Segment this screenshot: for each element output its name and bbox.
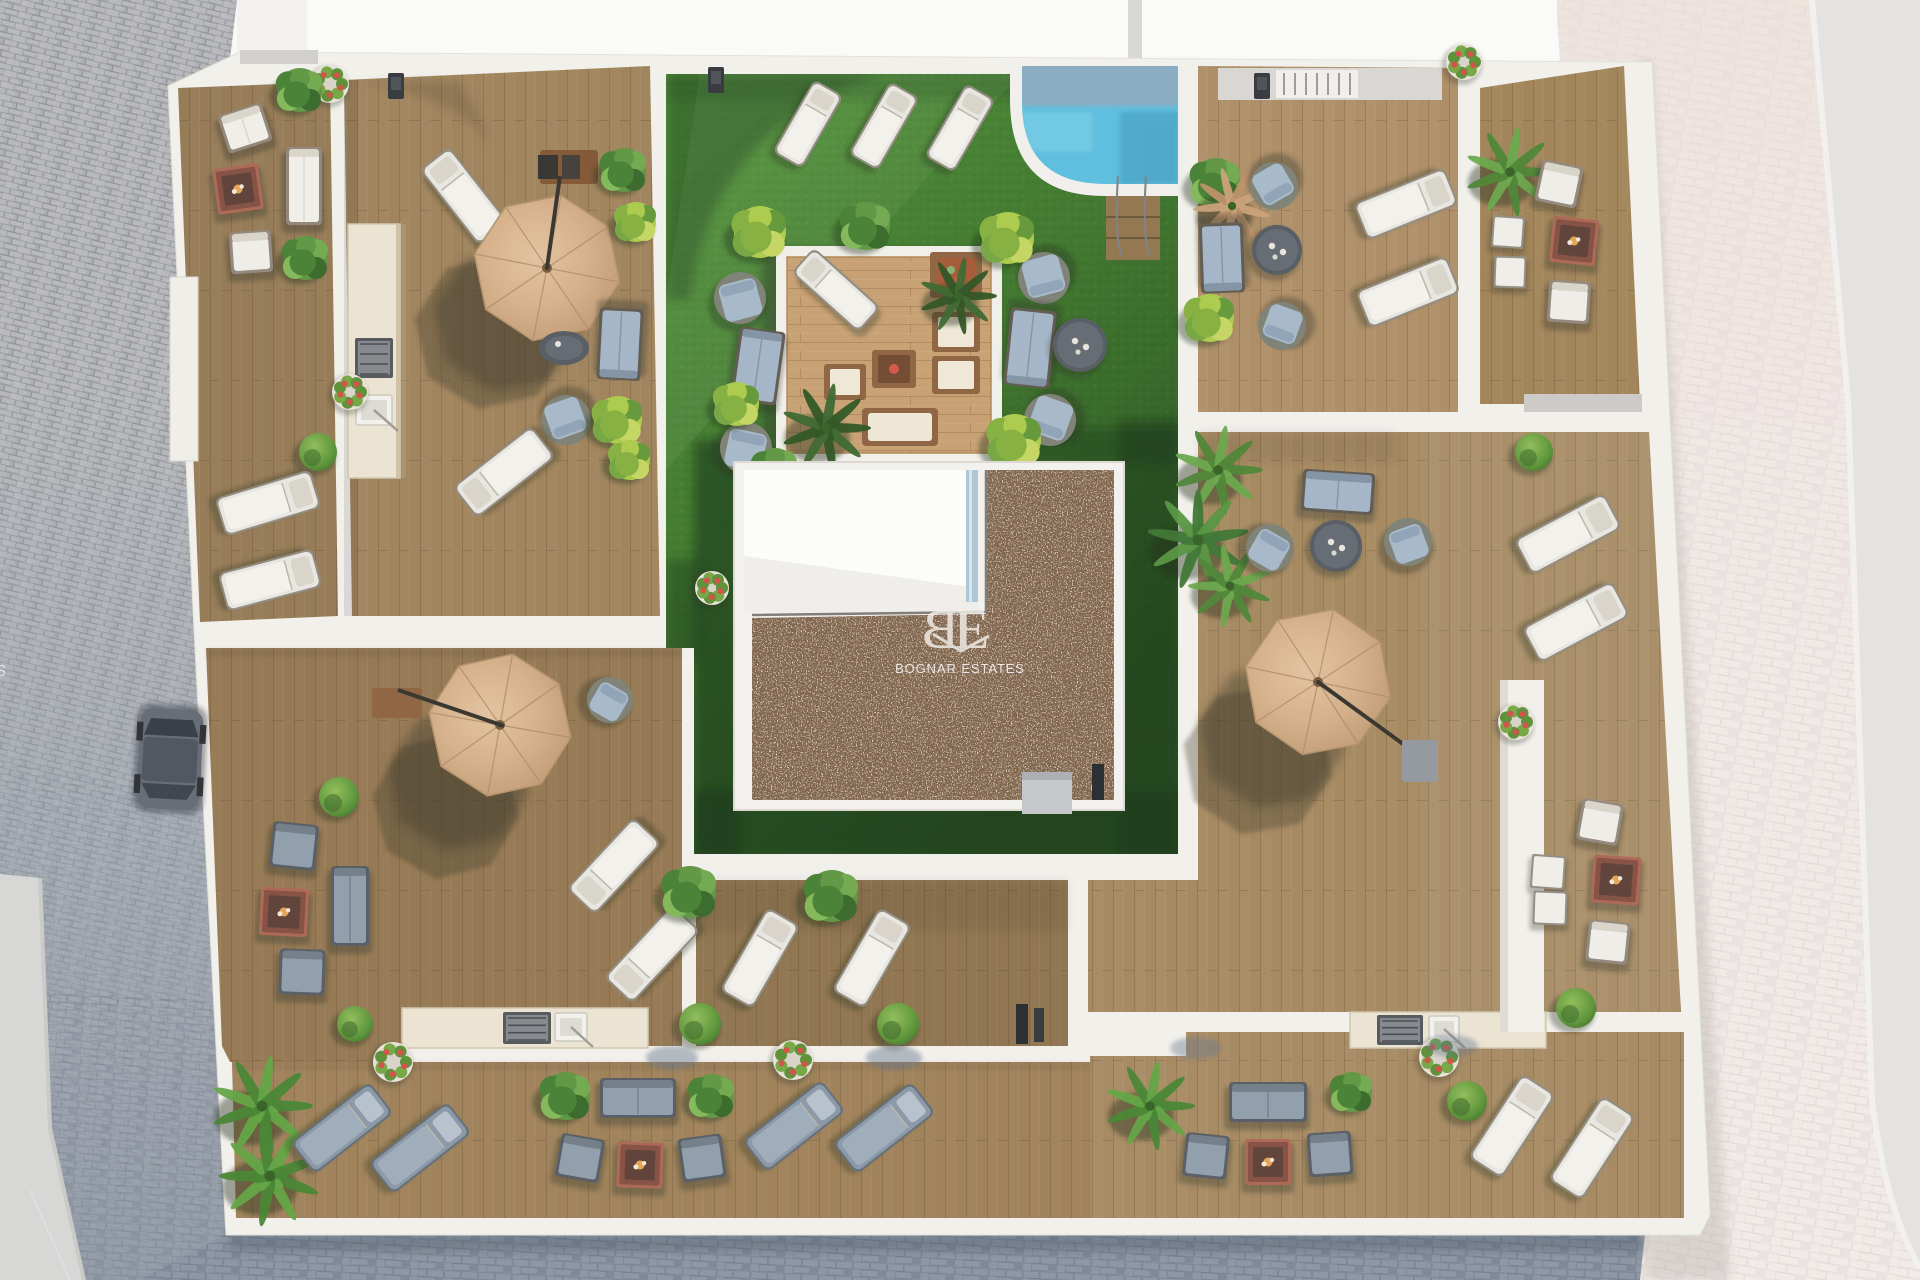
- svg-text:B: B: [922, 599, 959, 661]
- svg-text:BOGNAR ESTATES: BOGNAR ESTATES: [895, 661, 1025, 676]
- svg-text:ES: ES: [0, 663, 9, 680]
